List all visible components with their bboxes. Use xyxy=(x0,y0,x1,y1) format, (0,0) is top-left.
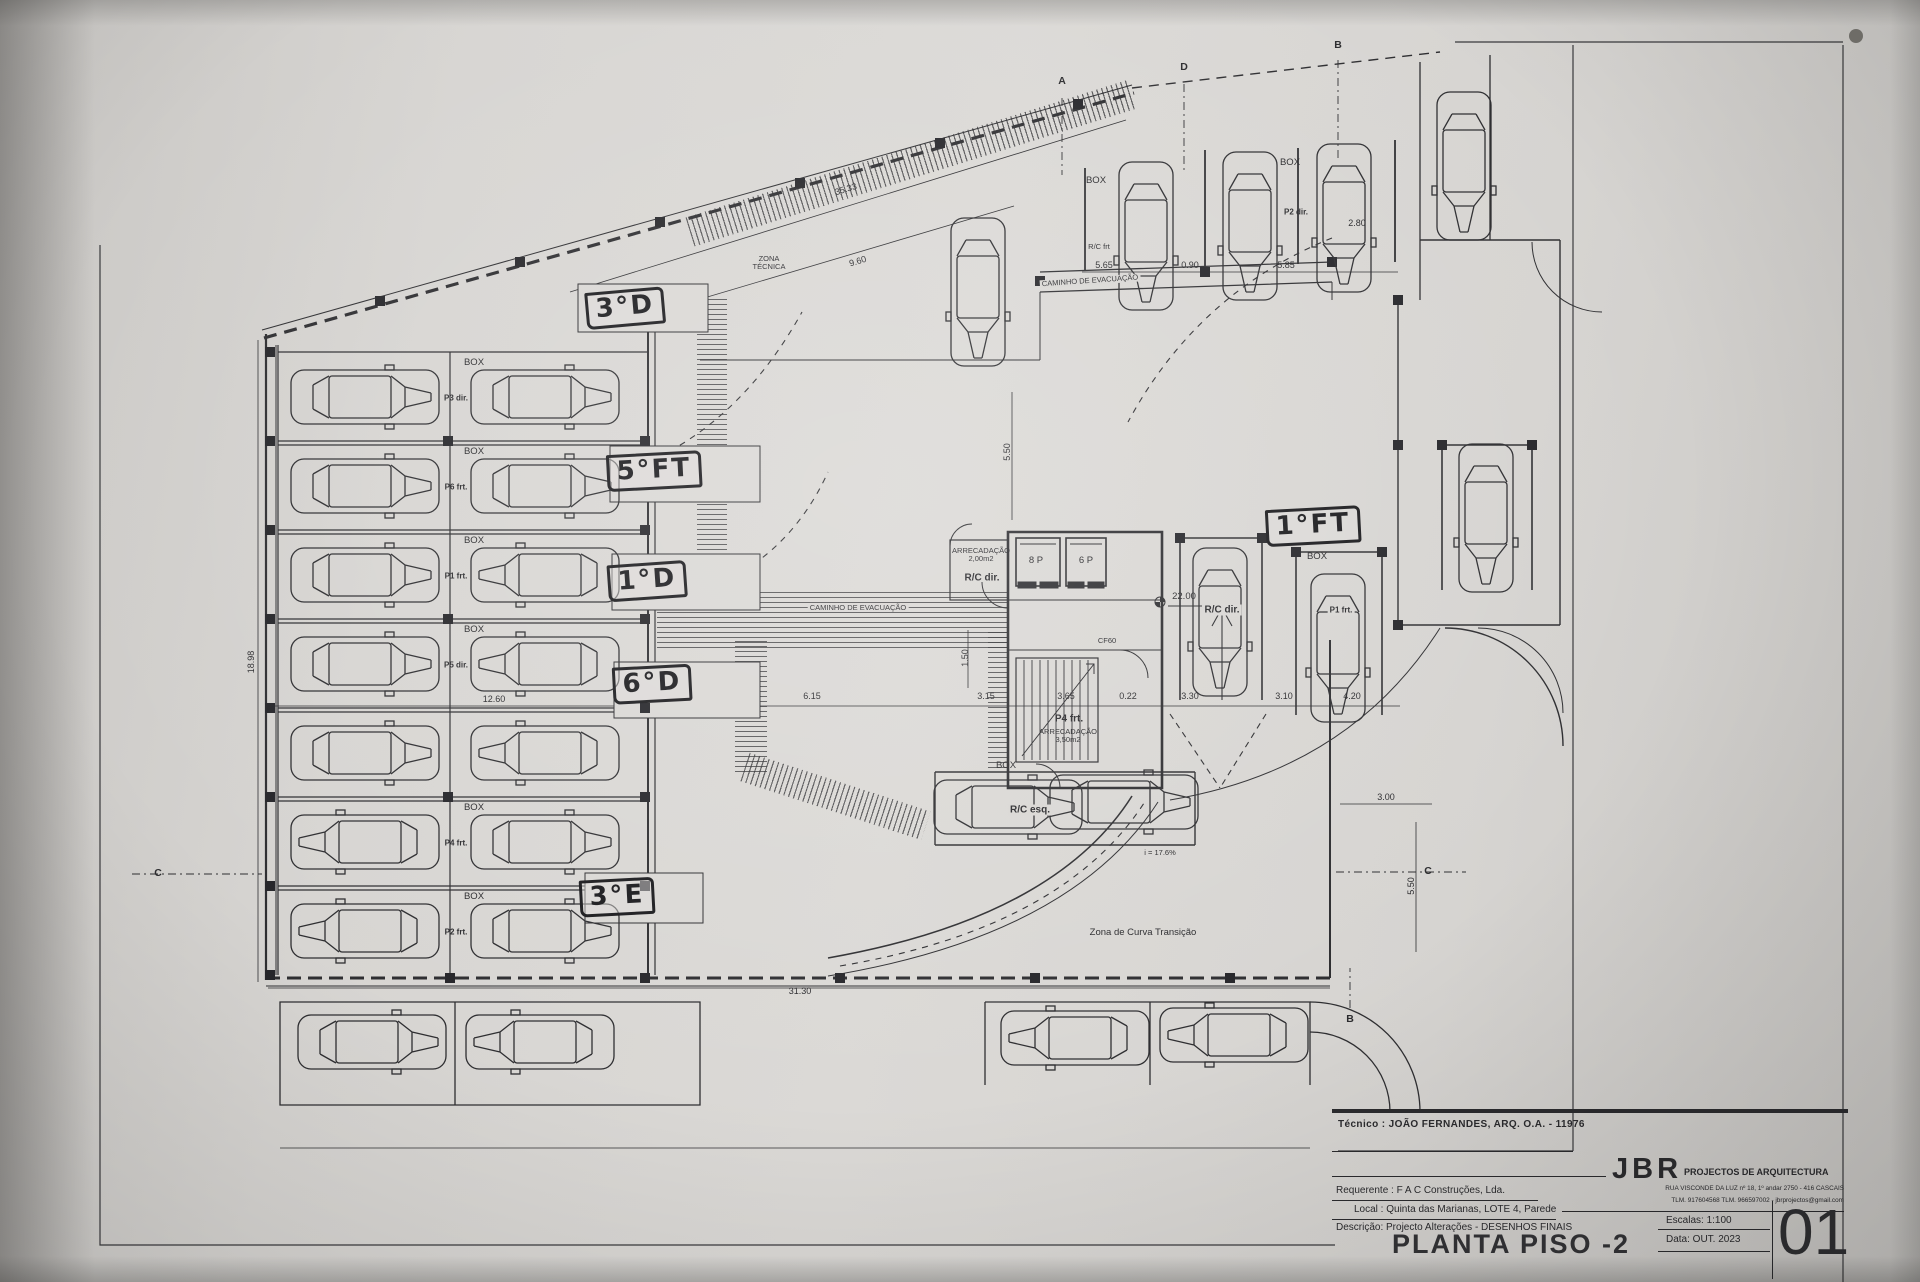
box-label: BOX xyxy=(464,358,484,368)
dimension: 2.80 xyxy=(1348,219,1366,229)
dimension: 0.22 xyxy=(1119,692,1137,702)
dimension: 18.98 xyxy=(247,651,257,674)
dimension: 12.60 xyxy=(483,695,506,705)
handwritten-unit-label: 6°D xyxy=(612,664,692,705)
zona-tecnica-label: ZONA TÉCNICA xyxy=(753,255,786,272)
drawing-title: PLANTA PISO -2 xyxy=(1392,1229,1630,1260)
dimension: 0.90 xyxy=(1181,261,1199,271)
level-label: 22.00 xyxy=(1172,592,1196,602)
firm-logo: JBR xyxy=(1612,1153,1682,1186)
box-label: BOX xyxy=(996,761,1016,771)
section-marker: C xyxy=(1424,866,1432,878)
title-block-rule xyxy=(1332,1109,1848,1113)
unit-label: P1 frt. xyxy=(445,573,468,582)
box-label: BOX xyxy=(1086,176,1106,186)
sheet-number: 01 xyxy=(1778,1195,1849,1269)
caminho-evacuacao-label: CAMINHO DE EVACUAÇÃO xyxy=(1040,273,1141,288)
elevator-label: 6 P xyxy=(1079,556,1093,566)
dimension: 5.65 xyxy=(1095,261,1113,271)
unit-label: P3 dir. xyxy=(444,395,468,404)
dimension: 1.50 xyxy=(961,649,971,667)
handwritten-unit-label: 3°E xyxy=(579,877,656,917)
section-marker: A xyxy=(1058,76,1066,88)
dimension: 3.10 xyxy=(1275,692,1293,702)
handwritten-unit-label: 3°D xyxy=(584,286,666,329)
curve-zone-label: Zona de Curva Transição xyxy=(1090,928,1197,938)
section-marker: D xyxy=(1180,62,1188,74)
fire-door-label: CF60 xyxy=(1098,637,1116,645)
box-label: BOX xyxy=(464,625,484,635)
dimension: 3.30 xyxy=(1181,692,1199,702)
unit-label: P5 dir. xyxy=(444,662,468,671)
section-marker: B xyxy=(1346,1014,1354,1026)
handwritten-unit-label: 1°D xyxy=(606,560,687,602)
dimension: 31.30 xyxy=(789,987,812,997)
unit-label: P4 frt. xyxy=(1055,714,1083,725)
dimension: 5.85 xyxy=(1277,261,1295,271)
photo-of-architectural-plan: ZONA TÉCNICACAMINHO DE EVACUAÇÃOCAMINHO … xyxy=(0,0,1920,1282)
handwritten-unit-label: 5°FT xyxy=(606,450,702,491)
dimension: 5.50 xyxy=(1003,443,1013,461)
escalas-field: Escalas: 1:100 xyxy=(1666,1215,1732,1226)
arrecadacao-label: ARRECADAÇÃO 2,00m2 xyxy=(952,547,1010,564)
unit-label: P6 frt. xyxy=(445,484,468,493)
dimension: 3.00 xyxy=(1377,793,1395,803)
unit-label: P2 dir. xyxy=(1284,209,1308,218)
title-block: Técnico : JOÃO FERNANDES, ARQ. O.A. - 11… xyxy=(1332,1105,1848,1282)
caminho-evacuacao-label: CAMINHO DE EVACUAÇÃO xyxy=(808,604,909,612)
box-label: BOX xyxy=(1280,158,1300,168)
box-label: BOX xyxy=(464,536,484,546)
arrecadacao-label: ARRECADAÇÃO 3,50m2 xyxy=(1039,728,1097,745)
data-field: Data: OUT. 2023 xyxy=(1666,1234,1740,1245)
dimension: 6.15 xyxy=(803,692,821,702)
firm-address: RUA VISCONDE DA LUZ nº 18, 1º andar 2750… xyxy=(1572,1185,1844,1192)
section-marker: C xyxy=(154,868,162,880)
unit-label: R/C dir. xyxy=(1202,605,1241,616)
dimension: 3.15 xyxy=(977,692,995,702)
dimension: 9.60 xyxy=(848,255,868,270)
unit-label: R/C esq. xyxy=(1008,805,1052,816)
firm-tagline: PROJECTOS DE ARQUITECTURA xyxy=(1684,1167,1829,1177)
annotation-layer: ZONA TÉCNICACAMINHO DE EVACUAÇÃOCAMINHO … xyxy=(0,0,1920,1282)
section-marker: B xyxy=(1334,40,1342,52)
box-label: BOX xyxy=(464,447,484,457)
unit-label: R/C frt xyxy=(1088,243,1110,251)
elevator-label: 8 P xyxy=(1029,556,1043,566)
dimension: 4.20 xyxy=(1343,692,1361,702)
unit-label: P4 frt. xyxy=(445,840,468,849)
dimension: 35.33 xyxy=(834,182,858,198)
dimension: 3.65 xyxy=(1057,692,1075,702)
dimension: 5.50 xyxy=(1407,877,1417,895)
unit-label: P2 frt. xyxy=(445,929,468,938)
local-field: Local : Quinta das Marianas, LOTE 4, Par… xyxy=(1354,1204,1556,1215)
drawing-sheet: ZONA TÉCNICACAMINHO DE EVACUAÇÃOCAMINHO … xyxy=(0,0,1920,1282)
box-label: BOX xyxy=(464,803,484,813)
ramp-slope-label: i = 17.6% xyxy=(1144,849,1175,857)
tecnico-line: Técnico : JOÃO FERNANDES, ARQ. O.A. - 11… xyxy=(1338,1119,1585,1130)
requerente-field: Requerente : F A C Construções, Lda. xyxy=(1336,1185,1505,1196)
handwritten-unit-label: 1°FT xyxy=(1265,505,1361,546)
box-label: BOX xyxy=(1307,552,1327,562)
unit-label: R/C dir. xyxy=(964,573,999,584)
unit-label: P1 frt. xyxy=(1328,607,1355,616)
box-label: BOX xyxy=(464,892,484,902)
